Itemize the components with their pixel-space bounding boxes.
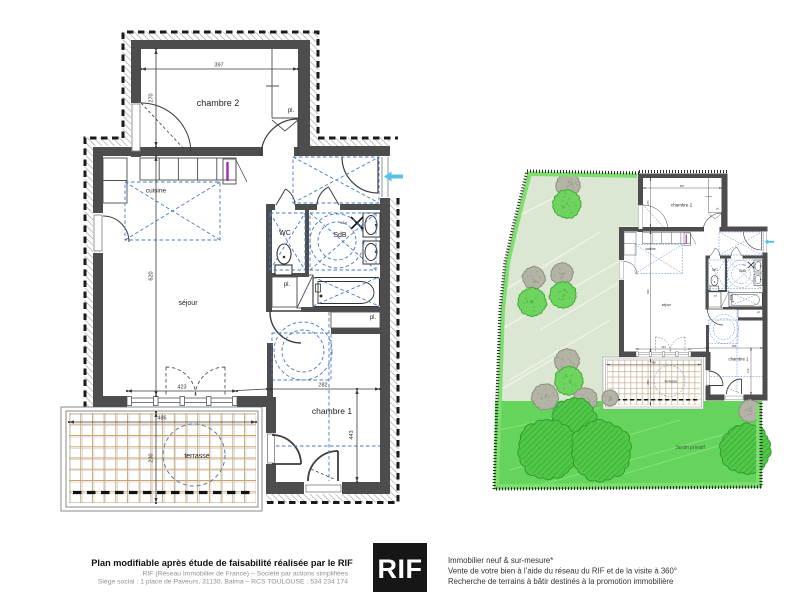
svg-text:Jardin privatif: Jardin privatif	[675, 445, 705, 451]
svg-text:RIF (Réseau Immobilier de Fran: RIF (Réseau Immobilier de France) – Soci…	[143, 571, 349, 578]
svg-text:RIF: RIF	[378, 554, 423, 584]
svg-text:Plan modifiable après étude de: Plan modifiable après étude de faisabili…	[91, 558, 353, 568]
svg-text:Recherche de terrains à bâtir: Recherche de terrains à bâtir destinés à…	[448, 577, 673, 586]
svg-text:Siège social : 1 place de Pave: Siège social : 1 place de Paveurs, 31130…	[98, 579, 348, 586]
svg-text:Immobilier neuf & sur-mesure*: Immobilier neuf & sur-mesure*	[448, 556, 553, 565]
svg-text:Vente de votre bien à l’aide d: Vente de votre bien à l’aide du réseau d…	[448, 567, 677, 576]
